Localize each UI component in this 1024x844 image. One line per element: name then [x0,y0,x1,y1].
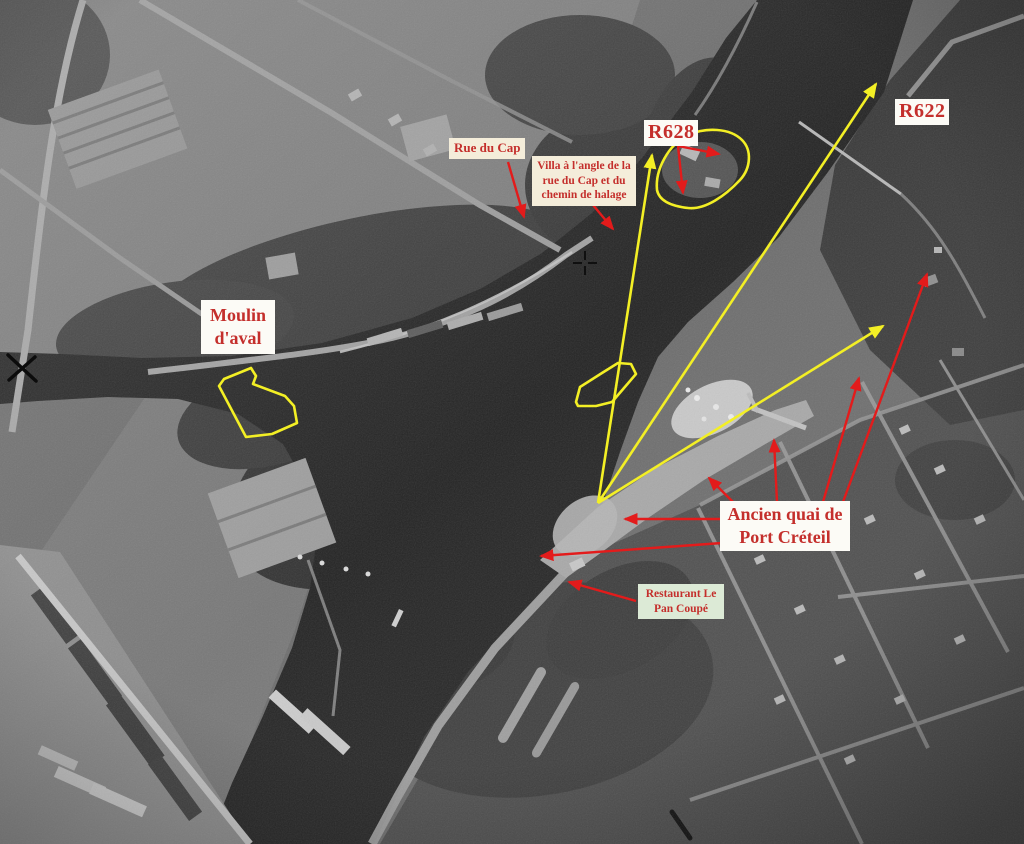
label-text: Port Créteil [725,526,845,549]
label-text: chemin de halage [536,188,632,203]
label-restaurant: Restaurant Le Pan Coupé [638,584,724,619]
vignette [0,0,1024,844]
label-moulin-daval: Moulin d'aval [201,300,275,354]
label-r628: R628 [644,120,698,146]
label-text: Ancien quai de [725,503,845,526]
label-text: Moulin [207,304,269,327]
annotated-aerial-photo: Rue du Cap Villa à l'angle de la rue du … [0,0,1024,844]
label-text: Restaurant Le [642,587,720,602]
label-villa: Villa à l'angle de la rue du Cap et du c… [532,156,636,206]
label-text: d'aval [207,327,269,350]
label-text: Pan Coupé [642,602,720,617]
label-text: R622 [899,99,945,125]
aerial-photo-canvas [0,0,1024,844]
label-ancien-quai: Ancien quai de Port Créteil [720,501,850,551]
label-text: R628 [648,120,694,146]
label-text: Villa à l'angle de la [536,159,632,174]
label-text: Rue du Cap [454,140,520,157]
label-rue-du-cap: Rue du Cap [449,138,525,159]
label-text: rue du Cap et du [536,174,632,189]
label-r622: R622 [895,99,949,125]
